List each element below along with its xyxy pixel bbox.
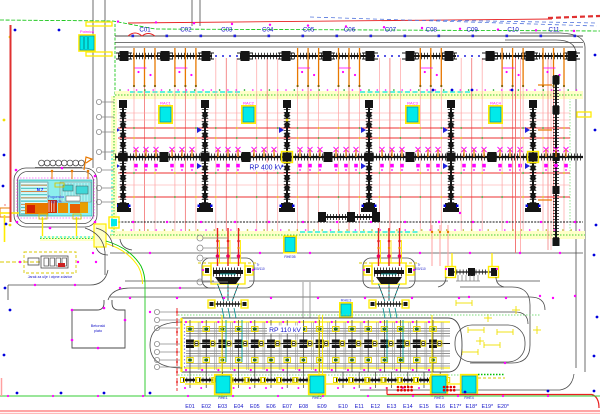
svg-text:RHE1: RHE1 bbox=[218, 396, 227, 400]
svg-text:C08: C08 bbox=[426, 27, 438, 34]
svg-text:E15: E15 bbox=[419, 404, 429, 410]
svg-text:C04: C04 bbox=[262, 27, 274, 34]
svg-text:E03: E03 bbox=[218, 404, 228, 410]
svg-text:E19*: E19* bbox=[481, 404, 494, 410]
svg-text:RHE2: RHE2 bbox=[312, 396, 321, 400]
svg-text:E16: E16 bbox=[435, 404, 445, 410]
svg-text:RAC3: RAC3 bbox=[407, 101, 418, 106]
svg-text:Betonski: Betonski bbox=[91, 324, 106, 328]
svg-text:RAC2: RAC2 bbox=[243, 101, 254, 106]
svg-text:RHE4: RHE4 bbox=[464, 396, 473, 400]
svg-text:C06: C06 bbox=[344, 27, 356, 34]
svg-text:E07: E07 bbox=[282, 404, 292, 410]
svg-text:Pogonska: Pogonska bbox=[48, 195, 64, 199]
svg-text:C01: C01 bbox=[139, 27, 151, 34]
svg-text:C05: C05 bbox=[303, 27, 315, 34]
svg-text:plato: plato bbox=[94, 329, 102, 333]
svg-text:RP 400 kV: RP 400 kV bbox=[249, 165, 283, 172]
svg-text:E14: E14 bbox=[403, 404, 413, 410]
svg-text:E01: E01 bbox=[185, 404, 195, 410]
svg-text:C11: C11 bbox=[549, 27, 560, 34]
svg-text:RHE05: RHE05 bbox=[284, 255, 295, 259]
svg-text:C07: C07 bbox=[385, 27, 397, 34]
svg-text:RHE3: RHE3 bbox=[434, 396, 443, 400]
svg-text:RAC1: RAC1 bbox=[160, 101, 171, 106]
svg-text:C09: C09 bbox=[467, 27, 479, 34]
svg-text:E06: E06 bbox=[266, 404, 276, 410]
svg-text:400/110: 400/110 bbox=[253, 267, 265, 271]
svg-text:C02: C02 bbox=[180, 27, 192, 34]
svg-text:C03: C03 bbox=[221, 27, 233, 34]
svg-text:N 7: N 7 bbox=[37, 187, 44, 192]
svg-text:RP 110 kV: RP 110 kV bbox=[269, 327, 301, 334]
svg-text:E02: E02 bbox=[201, 404, 211, 410]
svg-text:E12: E12 bbox=[371, 404, 381, 410]
svg-text:E08: E08 bbox=[299, 404, 309, 410]
svg-text:E20*: E20* bbox=[497, 404, 510, 410]
svg-text:E13: E13 bbox=[387, 404, 397, 410]
svg-text:E04: E04 bbox=[234, 404, 244, 410]
svg-text:400/110: 400/110 bbox=[414, 267, 426, 271]
svg-text:E18*: E18* bbox=[466, 404, 479, 410]
svg-text:E09: E09 bbox=[317, 404, 327, 410]
svg-text:E10: E10 bbox=[338, 404, 348, 410]
svg-text:E17*: E17* bbox=[450, 404, 463, 410]
svg-text:E11: E11 bbox=[355, 404, 364, 410]
svg-text:Jarak za ulje i otpne zdarice: Jarak za ulje i otpne zdarice bbox=[28, 275, 73, 279]
svg-text:RHE3: RHE3 bbox=[341, 298, 352, 303]
svg-text:RAC4: RAC4 bbox=[490, 101, 501, 106]
svg-text:zgrada: zgrada bbox=[51, 200, 62, 204]
svg-text:C10: C10 bbox=[507, 27, 519, 34]
svg-text:E05: E05 bbox=[250, 404, 260, 410]
svg-text:Potrnica: Potrnica bbox=[80, 30, 95, 34]
svg-text:x: x bbox=[4, 203, 6, 207]
